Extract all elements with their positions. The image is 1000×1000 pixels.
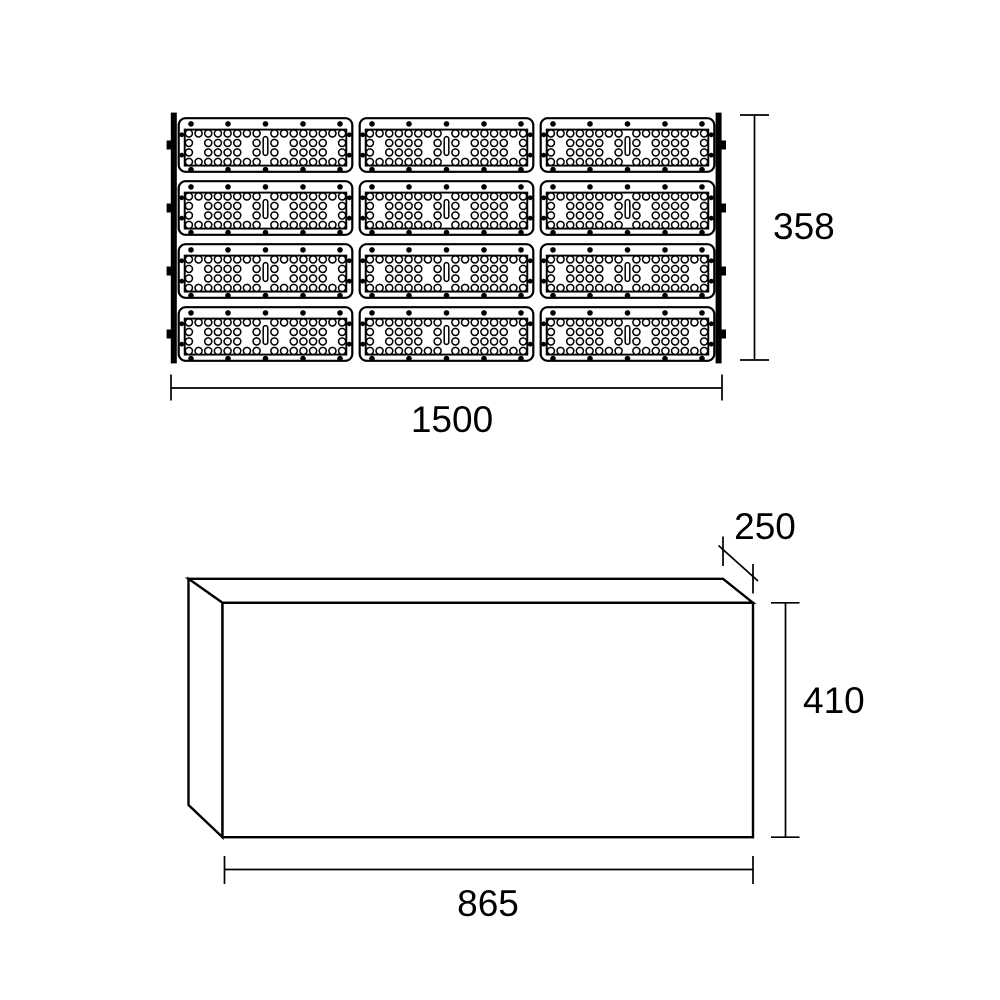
led-module-grid (179, 118, 715, 361)
led-module (179, 307, 353, 361)
side-width-dimension-label: 865 (457, 883, 519, 924)
left-mount-tab (167, 141, 172, 150)
depth-dimension-label: 250 (734, 506, 796, 547)
led-module (360, 307, 534, 361)
housing-front-face (223, 603, 754, 837)
led-module (179, 244, 353, 298)
fixture-front-view: 1500 358 (167, 113, 835, 440)
led-module (541, 244, 715, 298)
led-module (541, 118, 715, 172)
housing-top-face (189, 579, 754, 603)
depth-dimension: 250 (719, 506, 796, 594)
right-mount-tab (721, 330, 726, 339)
left-mount-tab (167, 267, 172, 276)
led-module (360, 181, 534, 235)
right-mount-tab (721, 141, 726, 150)
led-module (179, 181, 353, 235)
led-module (360, 244, 534, 298)
left-mount-tab (167, 330, 172, 339)
right-mount-tab (721, 204, 726, 213)
housing-side-view: 250 410 865 (189, 506, 865, 924)
right-rail (716, 113, 722, 364)
led-module (360, 118, 534, 172)
led-module (541, 181, 715, 235)
side-height-dimension: 410 (771, 603, 865, 837)
dim-line (719, 546, 759, 582)
housing-left-face (189, 579, 223, 837)
side-height-dimension-label: 410 (803, 680, 865, 721)
technical-drawing-sheet: 1500 358 250 (0, 0, 1000, 1000)
side-width-dimension: 865 (225, 856, 754, 924)
right-mount-tab (721, 267, 726, 276)
front-height-dimension: 358 (740, 115, 835, 360)
left-mount-tab (167, 204, 172, 213)
left-rail (171, 113, 177, 364)
led-module (541, 307, 715, 361)
luminaire-dimension-drawing: 1500 358 250 (0, 0, 1000, 1000)
front-height-dimension-label: 358 (773, 206, 835, 247)
front-width-dimension: 1500 (171, 375, 722, 441)
led-module (179, 118, 353, 172)
front-width-dimension-label: 1500 (411, 399, 493, 440)
